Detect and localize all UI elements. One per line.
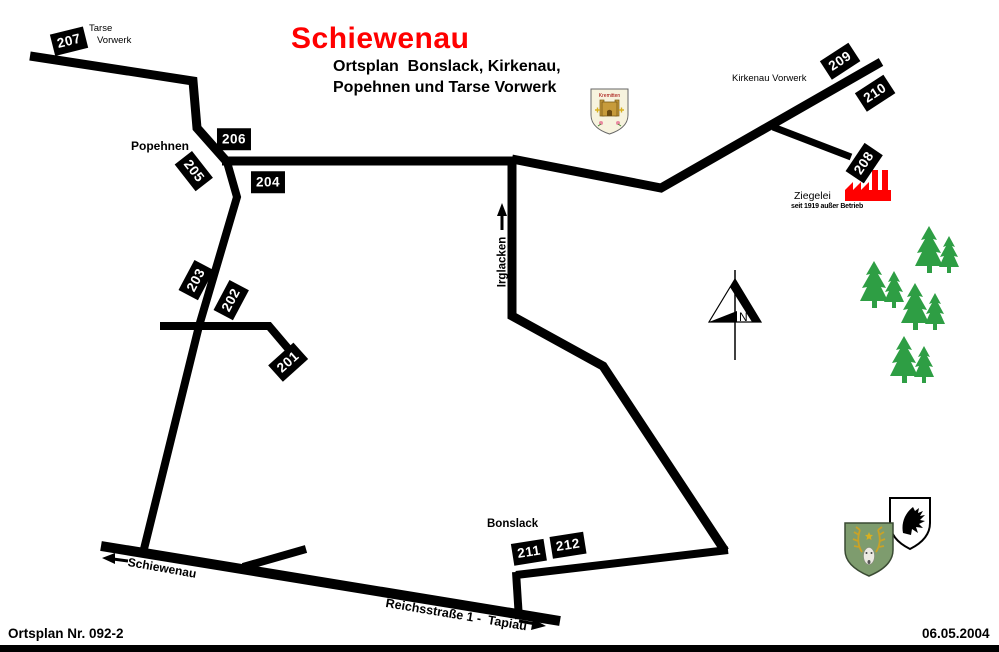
compass-north-icon: N [709, 270, 761, 360]
eagle-coat-of-arms [890, 498, 930, 549]
compass-label: N [739, 310, 748, 324]
parish-shield-label: Kremitten [599, 93, 621, 99]
road-line-tarse [30, 56, 228, 163]
road-line-bonslack [516, 550, 728, 575]
subtitle-line2: Popehnen und Tarse Vorwerk [333, 79, 556, 97]
stag-coat-of-arms [845, 523, 893, 576]
tree-icon [901, 283, 945, 330]
page-title: Schiewenau [291, 22, 469, 57]
plan-date: 06.05.2004 [922, 626, 990, 642]
subtitle-line1: Ortsplan Bonslack, Kirkenau, [333, 58, 561, 76]
road-line-irglacken [512, 157, 725, 551]
label-popehnen: Popehnen [131, 140, 189, 154]
road-marker-206: 206 [217, 128, 251, 150]
label-bonslack: Bonslack [487, 518, 538, 531]
label-irglacken: Irglacken [496, 237, 509, 288]
road-marker-204: 204 [251, 171, 285, 193]
stag-skull-icon [864, 548, 875, 565]
label-tarse-vorwerk-line2: Vorwerk [97, 36, 131, 47]
road-line-ziegelei [773, 127, 851, 157]
tree-icon [860, 261, 904, 308]
road-line-fork [243, 549, 306, 567]
road-line-kirkenau [512, 62, 881, 188]
tree-icon [915, 226, 959, 273]
map-graphics: N Kremitten [0, 0, 999, 652]
road-line-201 [160, 326, 297, 359]
tree-icon [890, 336, 934, 383]
road-line-popehnen [143, 162, 237, 553]
road-line-reichsstrasse [101, 546, 560, 621]
label-ziegelei-note: seit 1919 außer Betrieb [791, 203, 863, 211]
bottom-border-bar [0, 645, 999, 652]
map-canvas: N Kremitten [0, 0, 999, 652]
arrow-up-irglacken-icon [497, 203, 507, 230]
plan-number: Ortsplan Nr. 092-2 [8, 626, 124, 642]
label-ziegelei: Ziegelei [794, 190, 831, 202]
parish-coat-of-arms: Kremitten [591, 89, 628, 134]
forest [860, 226, 959, 383]
label-tarse-vorwerk-line1: Tarse [89, 24, 112, 35]
label-kirkenau-vorwerk: Kirkenau Vorwerk [732, 74, 806, 85]
